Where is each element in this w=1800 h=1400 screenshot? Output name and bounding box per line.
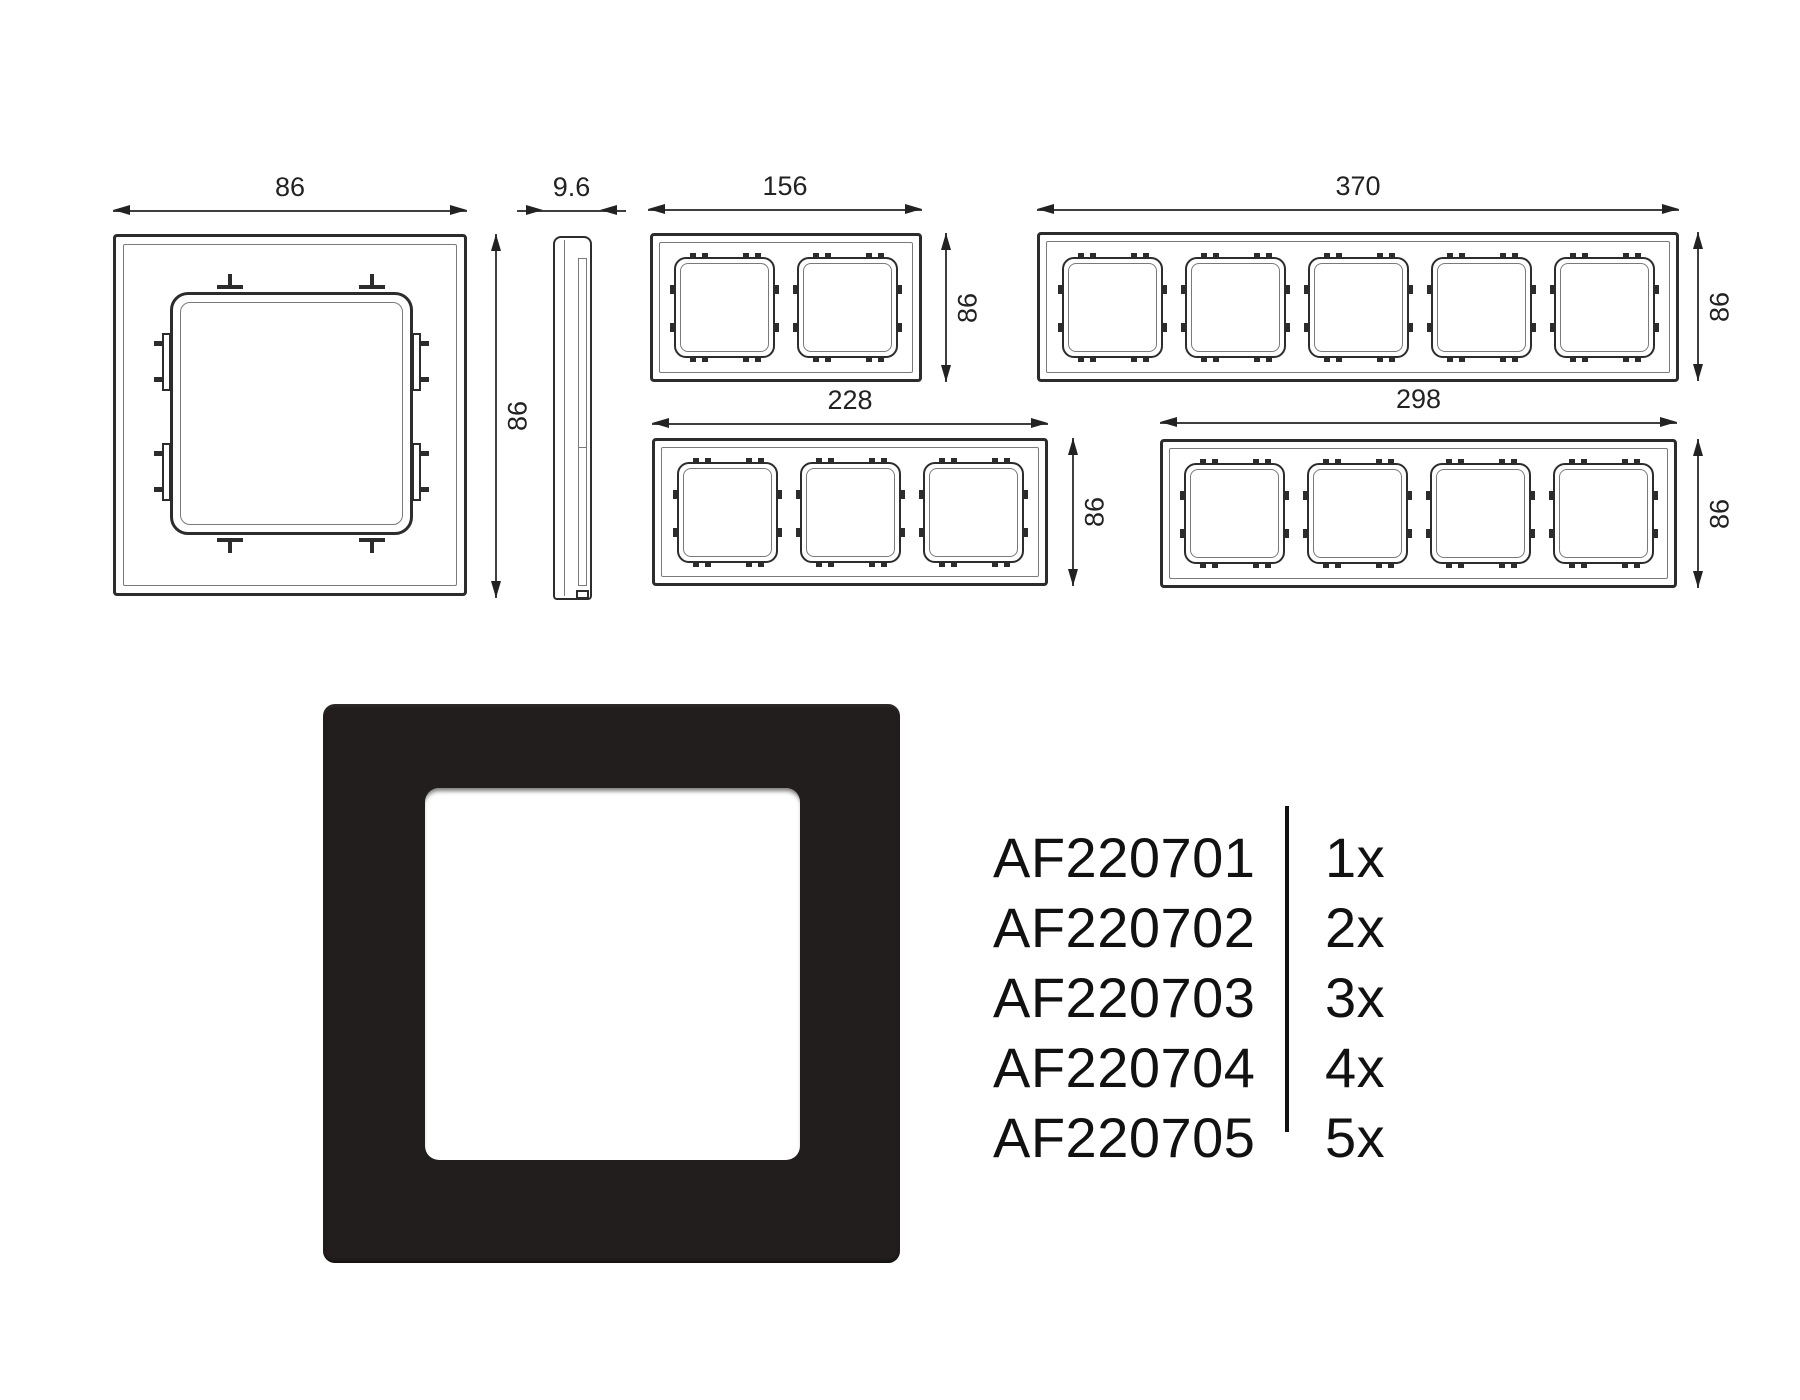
tab-top-stem bbox=[228, 274, 232, 286]
dim-line bbox=[1072, 438, 1074, 586]
clip-left bbox=[1181, 285, 1185, 294]
side-mount-body bbox=[578, 258, 587, 586]
clip-right bbox=[901, 528, 905, 537]
clip-left bbox=[1549, 491, 1553, 500]
dim-label: 86 bbox=[1705, 291, 1736, 321]
clip-left bbox=[1303, 491, 1307, 500]
dim-label: 86 bbox=[953, 292, 984, 322]
window-inner-line bbox=[180, 302, 403, 525]
dim-arrow-up bbox=[491, 234, 501, 251]
part-qty: 2x bbox=[1325, 893, 1385, 963]
clip-left bbox=[1058, 285, 1062, 294]
clip-right bbox=[1408, 529, 1412, 538]
window-inner-line bbox=[1191, 263, 1280, 352]
clip-left bbox=[1549, 529, 1553, 538]
drawing-side-profile-view bbox=[553, 236, 592, 600]
dim-arrow-left bbox=[1037, 204, 1054, 214]
tab-top bbox=[1254, 253, 1260, 257]
window-aperture bbox=[1430, 463, 1531, 564]
dim-arrow-left bbox=[652, 418, 669, 428]
clip-right bbox=[775, 323, 779, 332]
part-qty: 5x bbox=[1325, 1103, 1385, 1173]
window-inner-line bbox=[1436, 469, 1525, 558]
tab-bottom bbox=[1635, 358, 1641, 362]
tab-bottom bbox=[746, 563, 752, 567]
clip-left bbox=[1304, 285, 1308, 294]
clip-left bbox=[1426, 529, 1430, 538]
dim-arrow-down bbox=[941, 365, 951, 382]
tab-top bbox=[816, 458, 822, 462]
dim-line bbox=[1037, 209, 1679, 211]
part-qty-column: 1x2x3x4x5x bbox=[1325, 823, 1385, 1173]
clip-left bbox=[793, 285, 797, 294]
clip-right bbox=[898, 323, 902, 332]
clip-right bbox=[1024, 490, 1028, 499]
tab-top bbox=[1004, 458, 1010, 462]
tab-bottom bbox=[1389, 358, 1395, 362]
clip-right bbox=[1286, 285, 1290, 294]
clip-left bbox=[1181, 323, 1185, 332]
clip-right-finger bbox=[421, 487, 429, 492]
tab-top bbox=[746, 458, 752, 462]
window-inner-line bbox=[1560, 263, 1649, 352]
window-inner-line bbox=[1313, 469, 1402, 558]
dim-label: 298 bbox=[1396, 384, 1441, 415]
clip-left bbox=[670, 323, 674, 332]
tab-bottom bbox=[992, 563, 998, 567]
tab-bottom bbox=[866, 358, 872, 362]
tab-top bbox=[866, 253, 872, 257]
clip-left bbox=[1180, 529, 1184, 538]
tab-top bbox=[1090, 253, 1096, 257]
tab-bottom bbox=[1581, 564, 1587, 568]
dim-arrow-right bbox=[600, 205, 617, 215]
tab-top bbox=[1200, 459, 1206, 463]
tab-top bbox=[1581, 459, 1587, 463]
clip-left bbox=[919, 490, 923, 499]
dim-line bbox=[945, 233, 947, 382]
tab-bottom bbox=[1078, 358, 1084, 362]
window-aperture bbox=[800, 462, 901, 563]
tab-bottom bbox=[1213, 358, 1219, 362]
tab-top bbox=[1388, 459, 1394, 463]
clip-right bbox=[1409, 285, 1413, 294]
clip-left-finger bbox=[154, 341, 162, 346]
spec-sheet: 869.61563702282988686868686 AF220701AF22… bbox=[0, 0, 1800, 1400]
part-code-column: AF220701AF220702AF220703AF220704AF220705 bbox=[993, 823, 1255, 1173]
clip-left bbox=[1427, 285, 1431, 294]
tab-bottom bbox=[825, 358, 831, 362]
dim-line bbox=[1697, 439, 1699, 588]
window-aperture bbox=[1308, 257, 1409, 358]
tab-top bbox=[1336, 253, 1342, 257]
part-qty: 3x bbox=[1325, 963, 1385, 1033]
tab-top bbox=[1324, 253, 1330, 257]
dim-arrow-up bbox=[1693, 439, 1703, 456]
tab-top bbox=[878, 253, 884, 257]
window-inner-line bbox=[1314, 263, 1403, 352]
tab-bottom bbox=[743, 358, 749, 362]
part-code: AF220701 bbox=[993, 823, 1255, 893]
dim-arrow-left bbox=[113, 205, 130, 215]
part-code: AF220704 bbox=[993, 1033, 1255, 1103]
side-notch-line bbox=[578, 447, 587, 448]
tab-bottom bbox=[755, 358, 761, 362]
drawing-3-gang-front-view bbox=[652, 438, 1048, 586]
window-aperture bbox=[677, 462, 778, 563]
dim-line bbox=[1160, 422, 1677, 424]
part-code: AF220702 bbox=[993, 893, 1255, 963]
dim-line bbox=[648, 209, 922, 211]
tab-top bbox=[690, 253, 696, 257]
part-code: AF220703 bbox=[993, 963, 1255, 1033]
drawing-2-gang-front-view bbox=[650, 233, 922, 382]
tab-top bbox=[1499, 459, 1505, 463]
tab-bottom bbox=[1253, 564, 1259, 568]
product-photo-window-cutout bbox=[425, 788, 800, 1160]
tab-top bbox=[758, 458, 764, 462]
tab-bottom bbox=[1512, 358, 1518, 362]
tab-bottom bbox=[1212, 564, 1218, 568]
tab-top bbox=[1569, 459, 1575, 463]
tab-bottom bbox=[1511, 564, 1517, 568]
tab-bottom bbox=[1634, 564, 1640, 568]
tab-top bbox=[1265, 459, 1271, 463]
tab-bottom bbox=[1582, 358, 1588, 362]
tab-top bbox=[1458, 459, 1464, 463]
drawing-1gang-front-view bbox=[113, 234, 467, 596]
tab-bottom bbox=[1500, 358, 1506, 362]
window-aperture bbox=[1185, 257, 1286, 358]
dim-label: 86 bbox=[1705, 498, 1736, 528]
clip-right bbox=[775, 285, 779, 294]
tab-top bbox=[1446, 459, 1452, 463]
dim-label: 228 bbox=[827, 385, 872, 416]
dim-line bbox=[652, 423, 1048, 425]
clip-left bbox=[670, 285, 674, 294]
part-qty: 1x bbox=[1325, 823, 1385, 893]
clip-right bbox=[778, 528, 782, 537]
tab-top bbox=[1570, 253, 1576, 257]
tab-bottom bbox=[1090, 358, 1096, 362]
tab-bottom bbox=[1201, 358, 1207, 362]
tab-bottom bbox=[1131, 358, 1137, 362]
clip-right bbox=[1408, 491, 1412, 500]
tab-bottom bbox=[1622, 564, 1628, 568]
tab-bottom bbox=[881, 563, 887, 567]
tab-top bbox=[1389, 253, 1395, 257]
tab-bottom bbox=[1623, 358, 1629, 362]
clip-left bbox=[1058, 323, 1062, 332]
dim-arrow-down bbox=[1068, 569, 1078, 586]
tab-top bbox=[705, 458, 711, 462]
tab-bottom bbox=[816, 563, 822, 567]
tab-bottom bbox=[813, 358, 819, 362]
clip-right bbox=[1163, 323, 1167, 332]
tab-bottom bbox=[939, 563, 945, 567]
window-aperture bbox=[797, 257, 898, 358]
tab-top bbox=[693, 458, 699, 462]
clip-right-finger bbox=[421, 377, 429, 382]
clip-right bbox=[1163, 285, 1167, 294]
tab-bottom bbox=[705, 563, 711, 567]
tab-bottom bbox=[1265, 564, 1271, 568]
dim-arrow-down bbox=[491, 581, 501, 598]
clip-right bbox=[1532, 285, 1536, 294]
tab-bottom bbox=[690, 358, 696, 362]
tab-bottom bbox=[1459, 358, 1465, 362]
tab-bottom bbox=[869, 563, 875, 567]
tab-top bbox=[951, 458, 957, 462]
tab-bottom bbox=[693, 563, 699, 567]
dim-label: 86 bbox=[275, 172, 305, 203]
tab-top bbox=[743, 253, 749, 257]
tab-bottom bbox=[878, 358, 884, 362]
clip-left bbox=[1426, 491, 1430, 500]
dim-arrow-left bbox=[526, 205, 543, 215]
tab-top bbox=[1511, 459, 1517, 463]
dim-arrow-down bbox=[1693, 571, 1703, 588]
tab-top bbox=[1323, 459, 1329, 463]
window-aperture bbox=[674, 257, 775, 358]
tab-top bbox=[1635, 253, 1641, 257]
dim-line bbox=[495, 234, 497, 598]
tab-bottom-stem bbox=[370, 541, 374, 553]
clip-left bbox=[1303, 529, 1307, 538]
tab-bottom bbox=[758, 563, 764, 567]
dim-label: 156 bbox=[762, 171, 807, 202]
tab-bottom bbox=[1336, 358, 1342, 362]
tab-bottom bbox=[1388, 564, 1394, 568]
clip-right bbox=[1531, 491, 1535, 500]
clip-right bbox=[1655, 323, 1659, 332]
clip-right-plate bbox=[412, 443, 421, 501]
window-inner-line bbox=[1068, 263, 1157, 352]
tab-top bbox=[813, 253, 819, 257]
clip-right-finger bbox=[421, 451, 429, 456]
clip-left bbox=[919, 528, 923, 537]
window-inner-line bbox=[1559, 469, 1648, 558]
dim-arrow-left bbox=[648, 204, 665, 214]
clip-right bbox=[1531, 529, 1535, 538]
dim-arrow-down bbox=[1693, 364, 1703, 381]
clip-left bbox=[796, 528, 800, 537]
dim-label: 9.6 bbox=[553, 172, 591, 203]
tab-bottom bbox=[1200, 564, 1206, 568]
dim-label: 86 bbox=[1080, 497, 1111, 527]
tab-bottom bbox=[702, 358, 708, 362]
clip-left bbox=[673, 528, 677, 537]
tab-top bbox=[1376, 459, 1382, 463]
tab-bottom bbox=[1446, 564, 1452, 568]
tab-bottom bbox=[1335, 564, 1341, 568]
tab-top bbox=[702, 253, 708, 257]
tab-top bbox=[1623, 253, 1629, 257]
window-inner-line bbox=[1190, 469, 1279, 558]
tab-top bbox=[755, 253, 761, 257]
tab-top bbox=[1143, 253, 1149, 257]
tab-top bbox=[828, 458, 834, 462]
tab-top bbox=[1622, 459, 1628, 463]
dim-line bbox=[1697, 232, 1699, 381]
clip-right bbox=[1654, 491, 1658, 500]
dim-arrow-up bbox=[941, 233, 951, 250]
clip-right-finger bbox=[421, 341, 429, 346]
window-aperture bbox=[1062, 257, 1163, 358]
tab-top bbox=[1377, 253, 1383, 257]
window-aperture bbox=[1184, 463, 1285, 564]
tab-top bbox=[1213, 253, 1219, 257]
clip-right-plate bbox=[412, 333, 421, 391]
tab-top bbox=[992, 458, 998, 462]
clip-left-plate bbox=[162, 333, 171, 391]
tab-bottom bbox=[1254, 358, 1260, 362]
window-inner-line bbox=[683, 468, 772, 557]
drawing-4-gang-front-view bbox=[1160, 439, 1677, 588]
dim-label: 370 bbox=[1335, 171, 1380, 202]
tab-bottom bbox=[1004, 563, 1010, 567]
tab-top bbox=[1266, 253, 1272, 257]
window-inner-line bbox=[803, 263, 892, 352]
tab-bottom bbox=[1377, 358, 1383, 362]
dim-arrow-right bbox=[1660, 417, 1677, 427]
window-inner-line bbox=[806, 468, 895, 557]
tab-bottom bbox=[1447, 358, 1453, 362]
clip-left-finger bbox=[154, 487, 162, 492]
tab-bottom bbox=[1266, 358, 1272, 362]
tab-bottom-stem bbox=[228, 541, 232, 553]
part-code: AF220705 bbox=[993, 1103, 1255, 1173]
clip-left bbox=[1550, 323, 1554, 332]
dim-arrow-right bbox=[905, 204, 922, 214]
tab-bottom bbox=[1143, 358, 1149, 362]
part-list-divider bbox=[1285, 806, 1289, 1132]
clip-right bbox=[1285, 529, 1289, 538]
window-aperture bbox=[170, 292, 413, 535]
tab-top bbox=[1634, 459, 1640, 463]
dim-arrow-up bbox=[1068, 438, 1078, 455]
clip-left bbox=[1304, 323, 1308, 332]
tab-top bbox=[869, 458, 875, 462]
tab-bottom bbox=[1569, 564, 1575, 568]
clip-left bbox=[1427, 323, 1431, 332]
tab-bottom bbox=[1499, 564, 1505, 568]
window-inner-line bbox=[929, 468, 1018, 557]
tab-top bbox=[825, 253, 831, 257]
clip-left bbox=[1550, 285, 1554, 294]
tab-top bbox=[1582, 253, 1588, 257]
product-photo-black-frame bbox=[323, 704, 900, 1263]
clip-left bbox=[796, 490, 800, 499]
window-aperture bbox=[1554, 257, 1655, 358]
tab-top bbox=[1447, 253, 1453, 257]
clip-right bbox=[901, 490, 905, 499]
dim-arrow-right bbox=[450, 205, 467, 215]
window-aperture bbox=[1307, 463, 1408, 564]
clip-right bbox=[1286, 323, 1290, 332]
tab-top bbox=[1212, 459, 1218, 463]
clip-left-finger bbox=[154, 377, 162, 382]
tab-top bbox=[1131, 253, 1137, 257]
tab-bottom bbox=[1324, 358, 1330, 362]
clip-right bbox=[1285, 491, 1289, 500]
dim-arrow-up bbox=[1693, 232, 1703, 249]
tab-bottom bbox=[951, 563, 957, 567]
side-front-face-line bbox=[564, 240, 565, 596]
tab-top bbox=[1459, 253, 1465, 257]
tab-bottom bbox=[1323, 564, 1329, 568]
clip-right bbox=[1654, 529, 1658, 538]
tab-bottom bbox=[1376, 564, 1382, 568]
tab-top bbox=[1253, 459, 1259, 463]
window-inner-line bbox=[1437, 263, 1526, 352]
clip-right bbox=[778, 490, 782, 499]
tab-top bbox=[1335, 459, 1341, 463]
dim-arrow-right bbox=[1662, 204, 1679, 214]
tab-top bbox=[1201, 253, 1207, 257]
clip-left-plate bbox=[162, 443, 171, 501]
dim-line bbox=[113, 210, 467, 212]
window-inner-line bbox=[680, 263, 769, 352]
clip-right bbox=[1409, 323, 1413, 332]
clip-right bbox=[1532, 323, 1536, 332]
drawing-5-gang-front-view bbox=[1037, 232, 1679, 382]
dim-arrow-left bbox=[1160, 417, 1177, 427]
tab-top-stem bbox=[370, 274, 374, 286]
part-qty: 4x bbox=[1325, 1033, 1385, 1103]
tab-top bbox=[1500, 253, 1506, 257]
window-aperture bbox=[1553, 463, 1654, 564]
dim-label: 86 bbox=[503, 401, 534, 431]
tab-bottom bbox=[1570, 358, 1576, 362]
tab-top bbox=[939, 458, 945, 462]
clip-right bbox=[898, 285, 902, 294]
tab-top bbox=[881, 458, 887, 462]
tab-top bbox=[1512, 253, 1518, 257]
side-foot bbox=[576, 590, 589, 599]
clip-right bbox=[1655, 285, 1659, 294]
dim-arrow-right bbox=[1031, 418, 1048, 428]
window-aperture bbox=[923, 462, 1024, 563]
clip-right bbox=[1024, 528, 1028, 537]
clip-left bbox=[793, 323, 797, 332]
clip-left bbox=[1180, 491, 1184, 500]
clip-left-finger bbox=[154, 451, 162, 456]
tab-bottom bbox=[1458, 564, 1464, 568]
tab-bottom bbox=[828, 563, 834, 567]
window-aperture bbox=[1431, 257, 1532, 358]
tab-top bbox=[1078, 253, 1084, 257]
clip-left bbox=[673, 490, 677, 499]
